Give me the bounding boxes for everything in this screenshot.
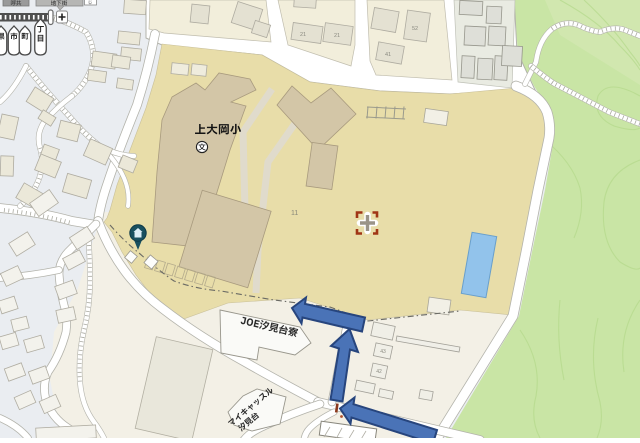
svg-text:21: 21	[300, 32, 306, 38]
svg-text:52: 52	[412, 26, 418, 32]
svg-text:42: 42	[376, 369, 382, 375]
svg-text:41: 41	[385, 52, 391, 58]
svg-text:21: 21	[334, 33, 340, 39]
svg-text:43: 43	[380, 349, 386, 355]
svg-text:11: 11	[291, 210, 298, 217]
